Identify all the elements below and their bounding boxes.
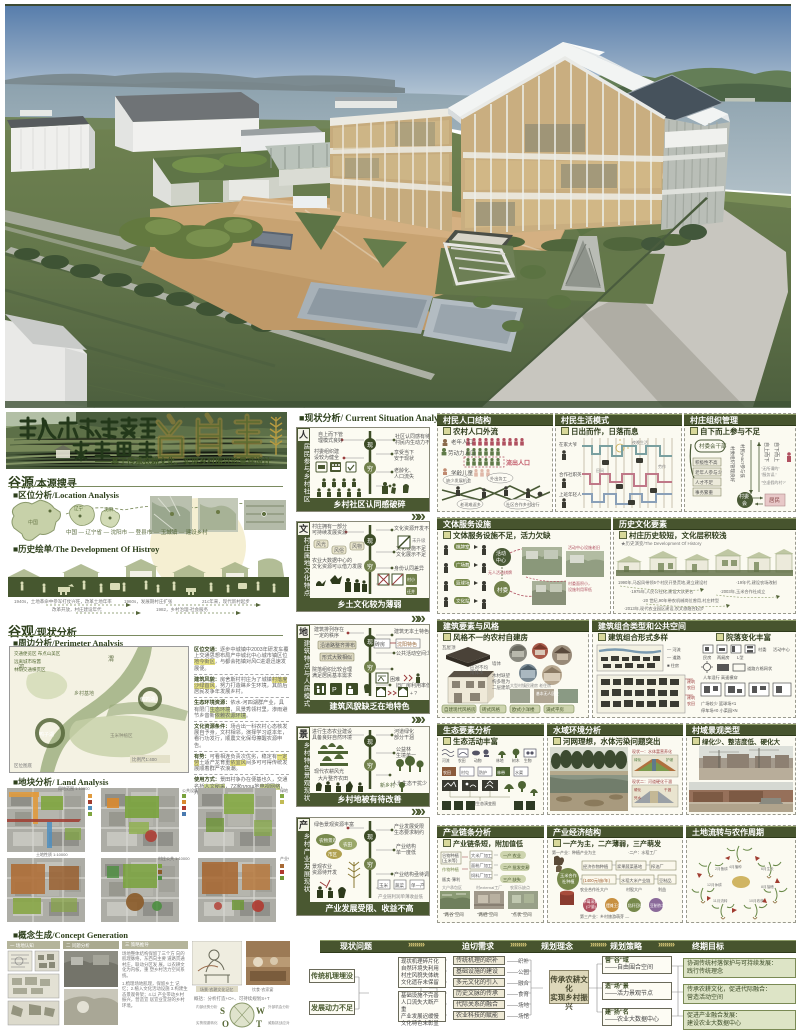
svg-text:自建现代风格房: 自建现代风格房	[444, 706, 476, 713]
svg-text:11月流转: 11月流转	[713, 898, 728, 903]
svg-text:·2003年,玉米合作社成立: ·2003年,玉米合作社成立	[720, 588, 765, 595]
svg-text:·二产：水稻工厂: ·二产：水稻工厂	[628, 849, 657, 855]
svg-text:大型村镇民建房 老住房: 大型村镇民建房 老住房	[510, 682, 551, 688]
svg-text:一产 农业: 一产 农业	[503, 852, 521, 859]
svg-text:L型: L型	[737, 654, 744, 660]
svg-text:穷: 穷	[367, 664, 373, 672]
svg-text:农田: 农田	[458, 758, 466, 763]
svg-text:1960s，发展期村庄扩张: 1960s，发展期村庄扩张	[124, 598, 173, 605]
svg-text:内部优势分析: 内部优势分析	[196, 1004, 218, 1009]
svg-text:进行生态农业建设: 进行生态农业建设	[312, 728, 352, 735]
svg-text:道路方格网状: 道路方格网状	[747, 665, 773, 672]
svg-text:公共活动空间少: 公共活动空间少	[396, 650, 429, 657]
svg-text:交通便览区 布点山美区: 交通便览区 布点山美区	[14, 650, 61, 657]
svg-text:沈阳: 沈阳	[104, 506, 113, 513]
svg-text:文化资源开发不足: 文化资源开发不足	[394, 525, 429, 532]
svg-text:产业布局 1:10001: 产业布局 1:10001	[280, 855, 289, 861]
svg-text:穷: 穷	[367, 465, 373, 473]
svg-text:农田: 农田	[687, 684, 695, 690]
svg-text:棋牌室: 棋牌室	[456, 544, 470, 551]
svg-text:现: 现	[367, 442, 373, 449]
svg-text:饲料厂加工: 饲料厂加工	[471, 872, 492, 879]
svg-text:建筑无本土特色: 建筑无本土特色	[394, 628, 429, 635]
svg-text:护坡: 护坡	[666, 757, 674, 762]
svg-text:公益林: 公益林	[396, 746, 411, 753]
svg-text:"空虚假的村?": "空虚假的村?"	[761, 479, 787, 485]
svg-text:农田: 农田	[687, 700, 695, 706]
svg-text:一 场地认知: 一 场地认知	[10, 942, 34, 949]
svg-text:积极性不高: 积极性不高	[695, 459, 718, 466]
svg-text:+ ?: + ?	[410, 691, 417, 697]
svg-text:设施利用率低: 设施利用率低	[568, 586, 592, 592]
svg-text:二 问题分析: 二 问题分析	[66, 942, 90, 949]
svg-text:乡村基地: 乡村基地	[74, 690, 94, 697]
svg-text:大米厂加工: 大米厂加工	[471, 852, 492, 859]
svg-text:村external工厂: 村external工厂	[476, 884, 502, 890]
svg-text:农田: 农田	[343, 841, 352, 848]
svg-text:砖式风格: 砖式风格	[482, 706, 500, 713]
svg-text:生态要求制约: 生态要求制约	[394, 829, 424, 836]
svg-text:用地范围 1:10000: 用地范围 1:10000	[58, 786, 90, 791]
svg-text:村委: 村委	[739, 493, 749, 500]
svg-text:风俗: 风俗	[334, 547, 344, 554]
svg-text:土地性质 1:10000: 土地性质 1:10000	[36, 851, 68, 857]
svg-text:单一度低: 单一度低	[396, 849, 416, 856]
svg-text:比例尺1:400: 比例尺1:400	[132, 756, 157, 763]
svg-text:自上而下管: 自上而下管	[318, 431, 343, 438]
svg-text:现代农耕风光: 现代农耕风光	[314, 768, 344, 775]
svg-text:自下而上: 自下而上	[773, 442, 780, 462]
svg-text:老龄化、: 老龄化、	[394, 467, 414, 474]
svg-text:"两栖"空间: "两栖"空间	[477, 911, 498, 918]
svg-text:现: 现	[367, 639, 373, 646]
svg-text:老现难返乡: 老现难返乡	[460, 501, 481, 508]
svg-text:10月收获: 10月收获	[749, 898, 764, 903]
svg-text:沿道路整齐排布: 沿道路整齐排布	[320, 642, 355, 649]
svg-text:劳动力人口: 劳动力人口	[448, 449, 476, 457]
svg-text:作物种植: 作物种植	[442, 866, 459, 873]
svg-text:新乡村: 新乡村	[380, 782, 395, 789]
svg-text:村委: 村委	[758, 646, 767, 652]
svg-text:干涸: 干涸	[664, 787, 672, 792]
svg-text:基本无人居住: 基本无人居住	[536, 691, 559, 696]
svg-text:摆摊王姐: 摆摊王姐	[606, 903, 621, 908]
svg-text:沈阳特色: 沈阳特色	[397, 641, 417, 648]
svg-text:利益: 利益	[658, 886, 666, 892]
svg-text:林带: 林带	[497, 769, 505, 775]
svg-text:6月生长: 6月生长	[761, 866, 774, 871]
svg-text:玉米: 玉米	[379, 882, 388, 889]
svg-text:砖房: 砖房	[375, 641, 385, 648]
svg-text:(1400元/亩/年): (1400元/亩/年)	[583, 877, 611, 884]
svg-text:迁并: 迁并	[407, 588, 415, 594]
svg-text:建筑排列存在: 建筑排列存在	[314, 626, 344, 633]
svg-text:饮食·农家宴: 饮食·农家宴	[252, 986, 273, 992]
svg-text:墙体: 墙体	[492, 660, 501, 667]
svg-text:无人活动棋牌: 无人活动棋牌	[488, 569, 512, 575]
svg-text:满足居民基本需求: 满足居民基本需求	[312, 672, 352, 679]
svg-text:自上而下: 自上而下	[763, 442, 770, 462]
svg-text:辽宁: 辽宁	[74, 505, 83, 512]
svg-text:"两谷"空间: "两谷"空间	[443, 911, 464, 918]
svg-text:人才不足: 人才不足	[695, 479, 713, 486]
svg-text:流出人口: 流出人口	[506, 459, 530, 467]
svg-text:村屯: 村屯	[461, 769, 469, 775]
svg-text:1940s，土地革命中参军打仗兴旺，改革土地年率: 1940s，土地革命中参军打仗兴旺，改革土地年率	[14, 598, 112, 605]
svg-text:部分干涸: 部分干涸	[394, 734, 414, 741]
svg-text:绿色景观资源丰富: 绿色景观资源丰富	[314, 821, 354, 828]
svg-text:村民участ参与低: 村民участ参与低	[739, 444, 746, 478]
svg-text:农物景观: 农物景观	[319, 837, 337, 844]
svg-text:事务繁重: 事务繁重	[695, 489, 713, 496]
svg-text:绿化: 绿化	[634, 757, 642, 762]
svg-text:停车场×0 小菜园×N: 停车场×0 小菜园×N	[701, 707, 738, 714]
svg-text:农业大数据中心的: 农业大数据中心的	[312, 557, 352, 564]
svg-text:村庄公共 1:10000: 村庄公共 1:10000	[158, 855, 190, 861]
svg-text:单一产: 单一产	[411, 882, 425, 889]
svg-text:村委组织建: 村委组织建	[314, 448, 339, 455]
svg-text:劳作: 劳作	[658, 463, 666, 469]
svg-text:村民内生动力不足: 村民内生动力不足	[395, 439, 429, 446]
svg-text:活动中心设施老旧: 活动中心设施老旧	[568, 544, 600, 550]
svg-text:未升级: 未升级	[412, 537, 426, 544]
svg-text:现状二：河道硬化干涸: 现状二：河道硬化干涸	[632, 778, 672, 784]
svg-text:村委: 村委	[497, 586, 509, 594]
svg-text:河道绿化: 河道绿化	[394, 728, 414, 735]
svg-text:会: 会	[742, 500, 747, 507]
svg-text:民房: 民房	[703, 654, 711, 661]
svg-text:第一产业：种植产业为主: 第一产业：种植产业为主	[552, 849, 596, 855]
svg-text:"点状"空间: "点状"空间	[511, 911, 532, 918]
svg-text:豆制作坊: 豆制作坊	[650, 903, 665, 908]
svg-text:T: T	[256, 1019, 262, 1028]
svg-text:2月备耕: 2月备耕	[715, 866, 728, 871]
svg-text:二层建筑: 二层建筑	[492, 684, 510, 691]
svg-text:具备良好自然环境: 具备良好自然环境	[312, 734, 352, 741]
svg-text:设较为健全: 设较为健全	[314, 454, 339, 461]
svg-text:现状一：水体富营养化: 现状一：水体富营养化	[632, 748, 672, 754]
svg-text:大户承包区: 大户承包区	[442, 884, 462, 890]
svg-text:社区认同感有待提升: 社区认同感有待提升	[395, 433, 429, 440]
svg-text:产业结构亟待调整: 产业结构亟待调整	[394, 871, 429, 878]
svg-text:水稻大米产业链: 水稻大米产业链	[621, 877, 651, 884]
svg-text:区位图底: 区位图底	[14, 762, 32, 769]
svg-text:中心: 中心	[496, 557, 506, 564]
svg-text:8月抽穗: 8月抽穗	[761, 884, 774, 889]
svg-text:风光: 风光	[316, 541, 326, 548]
svg-text:农田: 农田	[443, 769, 451, 775]
svg-text:浆果蔬菜基地: 浆果蔬菜基地	[617, 863, 643, 870]
svg-text:理模式良好: 理模式良好	[318, 437, 343, 444]
svg-text:玉米合作: 玉米合作	[560, 872, 578, 879]
svg-text:形式大致相似: 形式大致相似	[322, 654, 352, 661]
svg-text:夜晚生活: 夜晚生活	[632, 439, 648, 445]
svg-text:安于现状: 安于现状	[394, 455, 414, 462]
svg-text:(玉米等): (玉米等)	[442, 857, 458, 864]
svg-text:劣势规避转化: 劣势规避转化	[196, 1020, 218, 1025]
svg-text:身份认同差异: 身份认同差异	[394, 565, 424, 572]
svg-text:蔬菜: 蔬菜	[395, 882, 404, 889]
svg-text:社区合作乡村出行: 社区合作乡村出行	[506, 501, 540, 508]
svg-text:榨油厂: 榨油厂	[651, 863, 664, 870]
svg-text:"无所谓的": "无所谓的"	[761, 465, 780, 471]
svg-text:防护: 防护	[479, 769, 487, 775]
svg-text:鸭子湖: 鸭子湖	[39, 731, 54, 738]
svg-text:林地: 林地	[496, 758, 504, 763]
svg-text:生物: 生物	[524, 758, 532, 763]
svg-text:秸秆回收: 秸秆回收	[628, 903, 643, 908]
svg-text:穷: 穷	[367, 861, 373, 869]
svg-text:可持续发展资源: 可持续发展资源	[312, 529, 347, 536]
svg-text:硬化: 硬化	[634, 787, 642, 792]
svg-text:村委组织管理良好: 村委组织管理良好	[729, 446, 736, 482]
svg-text:河流: 河流	[442, 758, 450, 763]
svg-text:树木: 树木	[512, 758, 520, 763]
svg-text:瓦屋顶: 瓦屋顶	[442, 645, 456, 651]
svg-text:中国: 中国	[28, 519, 38, 526]
svg-text:草莓采摘: 草莓采摘	[583, 899, 598, 904]
svg-text:在家大爷: 在家大爷	[559, 441, 577, 448]
svg-text:鹌鹑湖: 鹌鹑湖	[140, 696, 155, 703]
svg-text:产业结构: 产业结构	[396, 843, 416, 850]
svg-text:满式平房: 满式平房	[546, 706, 564, 713]
svg-text:篮球场: 篮球场	[456, 580, 470, 587]
svg-text:绿地 1:10001: 绿地 1:10001	[280, 787, 289, 793]
svg-text:广场舞: 广场舞	[456, 562, 470, 569]
svg-text:豆制品: 豆制品	[659, 877, 672, 884]
svg-text:三产 缺失: 三产 缺失	[503, 876, 522, 883]
svg-text:1982，乡村治理-社会服务: 1982，乡村治理-社会服务	[156, 606, 209, 613]
svg-text:■ 住房: ■ 住房	[667, 662, 679, 669]
svg-text:活动: 活动	[496, 550, 506, 557]
svg-text:广场较少 篮球场×1: 广场较少 篮球场×1	[701, 700, 737, 707]
svg-text:资源待开发: 资源待开发	[312, 869, 337, 876]
svg-text:村委面积小，: 村委面积小，	[568, 580, 592, 586]
svg-text:二产 批发交易: 二产 批发交易	[503, 864, 529, 871]
svg-text:林荫交通横贯区: 林荫交通横贯区	[14, 666, 46, 673]
svg-text:远离城市喧嚣: 远离城市喧嚣	[14, 658, 41, 665]
svg-text:— 道路: — 道路	[667, 654, 682, 661]
svg-text:文化展示不足: 文化展示不足	[396, 551, 426, 558]
svg-text:两厢房: 两厢房	[717, 654, 730, 661]
svg-text:玉米种植区: 玉米种植区	[110, 732, 133, 739]
svg-text:木材缺望: 木材缺望	[492, 672, 510, 679]
svg-text:雨排水: 雨排水	[470, 669, 484, 676]
svg-text:田间: 田间	[596, 467, 604, 473]
svg-text:大片整齐农田: 大片整齐农田	[318, 775, 348, 782]
svg-text:产业发展受限: 产业发展受限	[394, 823, 424, 830]
svg-text:4月播种: 4月播种	[729, 864, 742, 869]
svg-text:死水: 死水	[634, 795, 642, 800]
svg-text:·20 世纪,90年带农机械岗位曾用,村庄转型: ·20 世纪,90年带农机械岗位曾用,村庄转型	[642, 597, 719, 604]
svg-text:经济作物种植: 经济作物种植	[583, 863, 608, 870]
svg-text:活动中心: 活动中心	[773, 646, 791, 653]
svg-text:人车混行 高速横穿: 人车混行 高速横穿	[703, 674, 738, 681]
svg-text:O: O	[222, 1019, 229, 1028]
svg-text:村委会干部: 村委会干部	[699, 442, 727, 450]
svg-text:文化站: 文化站	[456, 598, 470, 605]
svg-text:12月休耕: 12月休耕	[707, 882, 722, 887]
svg-text:文化资源可以借力发展: 文化资源可以借力发展	[312, 563, 362, 570]
svg-text:W: W	[256, 1006, 265, 1016]
svg-text:村小: 村小	[407, 576, 415, 582]
svg-text:21c年来，现代新村起步: 21c年来，现代新村起步	[202, 598, 250, 605]
svg-text:村股大户: 村股大户	[626, 886, 642, 892]
svg-text:一定的秩序: 一定的秩序	[314, 632, 339, 639]
svg-text:享受当下: 享受当下	[394, 449, 414, 456]
svg-text:S: S	[220, 1006, 225, 1016]
svg-text:穷: 穷	[367, 762, 373, 770]
svg-text:风物: 风物	[352, 543, 362, 550]
svg-text:院落组织比较合理: 院落组织比较合理	[312, 666, 352, 673]
svg-text:·1975年,人民公社化,建设大队更名: ·1975年,人民公社化,建设大队更名	[630, 588, 693, 595]
svg-text:水渠: 水渠	[515, 769, 523, 775]
svg-text:村庄拥有一部分: 村庄拥有一部分	[312, 523, 347, 530]
svg-text:动物: 动物	[474, 758, 482, 763]
svg-text:现: 现	[367, 538, 373, 545]
svg-text:市区: 市区	[328, 851, 337, 858]
svg-text:合作社职英: 合作社职英	[559, 471, 582, 478]
svg-text:农业合作社大户: 农业合作社大户	[580, 886, 608, 892]
svg-text:缺少发展机会: 缺少发展机会	[446, 477, 472, 484]
svg-text:(少量): (少量)	[586, 904, 597, 909]
svg-text:改革开放，村庄建设年代: 改革开放，村庄建设年代	[52, 606, 102, 613]
svg-text:第三产业：乡村旅游萌芽 —: 第三产业：乡村旅游萌芽 —	[580, 913, 629, 919]
svg-text:P: P	[332, 687, 337, 694]
svg-text:场景·农耕文化记忆: 场景·农耕文化记忆	[200, 986, 233, 992]
svg-text:"服务误,": "服务误,"	[761, 471, 778, 477]
svg-text:产业链利润单薄收益低: 产业链利润单薄收益低	[378, 893, 423, 900]
svg-text:人口流失: 人口流失	[394, 473, 414, 480]
svg-text:穷: 穷	[367, 563, 373, 571]
svg-text:老年人参与少: 老年人参与少	[695, 469, 722, 476]
svg-text:构多粗为: 构多粗为	[492, 678, 510, 685]
svg-text:现: 现	[367, 834, 373, 841]
svg-text:·19年代,建设农场改制: ·19年代,建设农场改制	[736, 579, 777, 586]
svg-text:面粉厂加工: 面粉厂加工	[471, 862, 492, 869]
svg-text:欧式小洋楼: 欧式小洋楼	[512, 706, 535, 713]
svg-text:景观农业: 景观农业	[312, 863, 332, 870]
svg-text:渭: 渭	[108, 655, 114, 663]
svg-text:— 河流: — 河流	[667, 646, 682, 653]
svg-text:现: 现	[367, 739, 373, 746]
svg-text:外出务工: 外出务工	[490, 475, 507, 482]
svg-text:人为生态干扰少: 人为生态干扰少	[392, 780, 427, 787]
svg-text:上班年轻人: 上班年轻人	[559, 491, 582, 498]
svg-text:1990年,马起凤带领5个村民开垦荒地,建立建设村: 1990年,马起凤带领5个村民开垦荒地,建立建设村	[618, 579, 708, 586]
svg-text:居民: 居民	[769, 497, 781, 504]
svg-text:老年人口: 老年人口	[451, 438, 473, 446]
svg-text:贩卖·薄利: 贩卖·薄利	[442, 876, 460, 883]
svg-text:社种植: 社种植	[562, 878, 575, 885]
svg-text:·2013年,现代农业园区建设,农文旅融合起步: ·2013年,现代农业园区建设,农文旅融合起步	[624, 605, 704, 612]
svg-text:困难: 困难	[390, 676, 400, 683]
svg-text:农家乐缺点: 农家乐缺点	[510, 884, 530, 890]
